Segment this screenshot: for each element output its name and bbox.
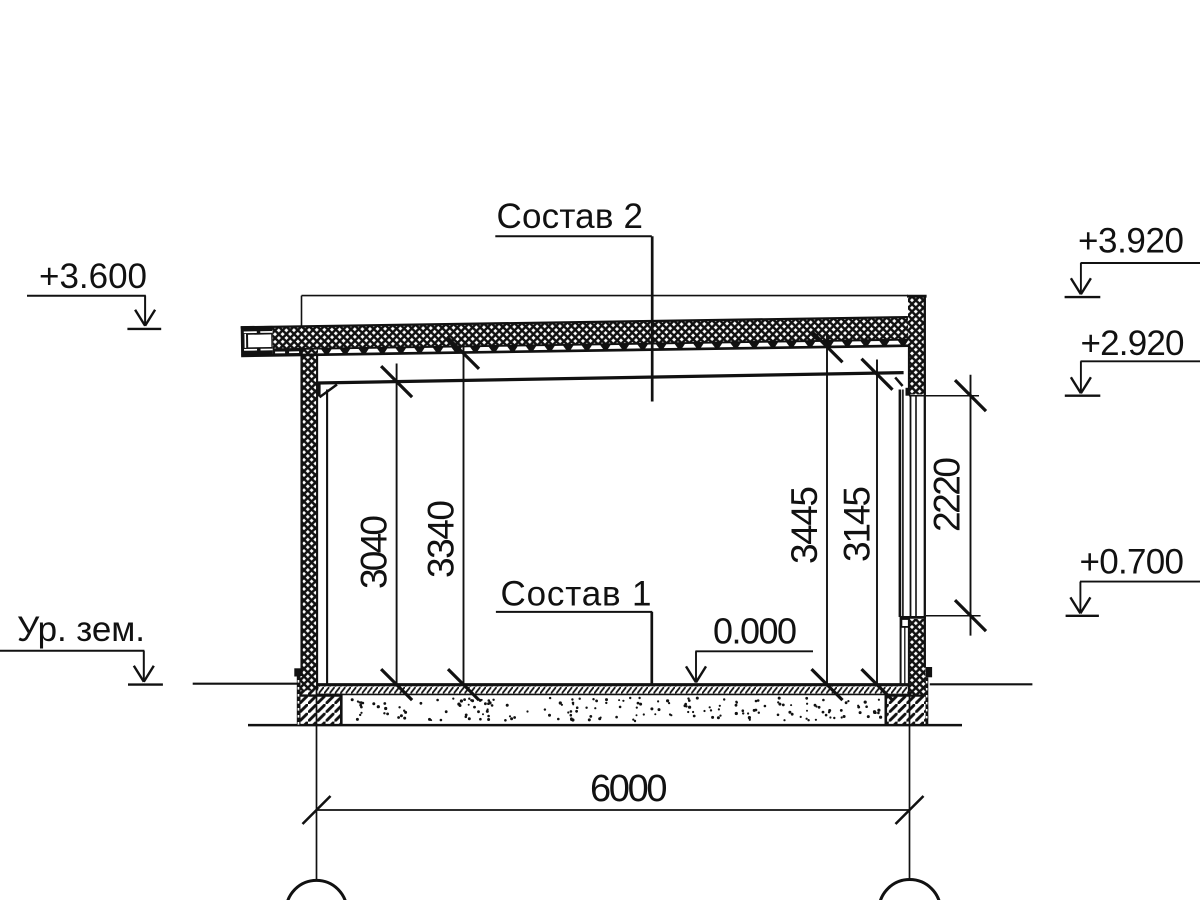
svg-text:Состав 2: Состав 2 <box>497 197 644 236</box>
svg-text:+0.700: +0.700 <box>1080 543 1185 582</box>
svg-text:2220: 2220 <box>927 457 968 532</box>
svg-text:+2.920: +2.920 <box>1081 324 1185 363</box>
svg-text:6000: 6000 <box>590 768 668 810</box>
svg-text:3145: 3145 <box>837 486 878 562</box>
svg-text:3445: 3445 <box>784 486 825 564</box>
svg-text:0.000: 0.000 <box>713 611 797 652</box>
svg-text:+3.920: +3.920 <box>1078 222 1184 261</box>
svg-text:Ур. зем.: Ур. зем. <box>17 610 145 649</box>
svg-text:3340: 3340 <box>421 500 462 578</box>
svg-text:Состав 1: Состав 1 <box>501 575 652 614</box>
svg-text:+3.600: +3.600 <box>39 257 147 296</box>
svg-text:3040: 3040 <box>354 515 395 589</box>
